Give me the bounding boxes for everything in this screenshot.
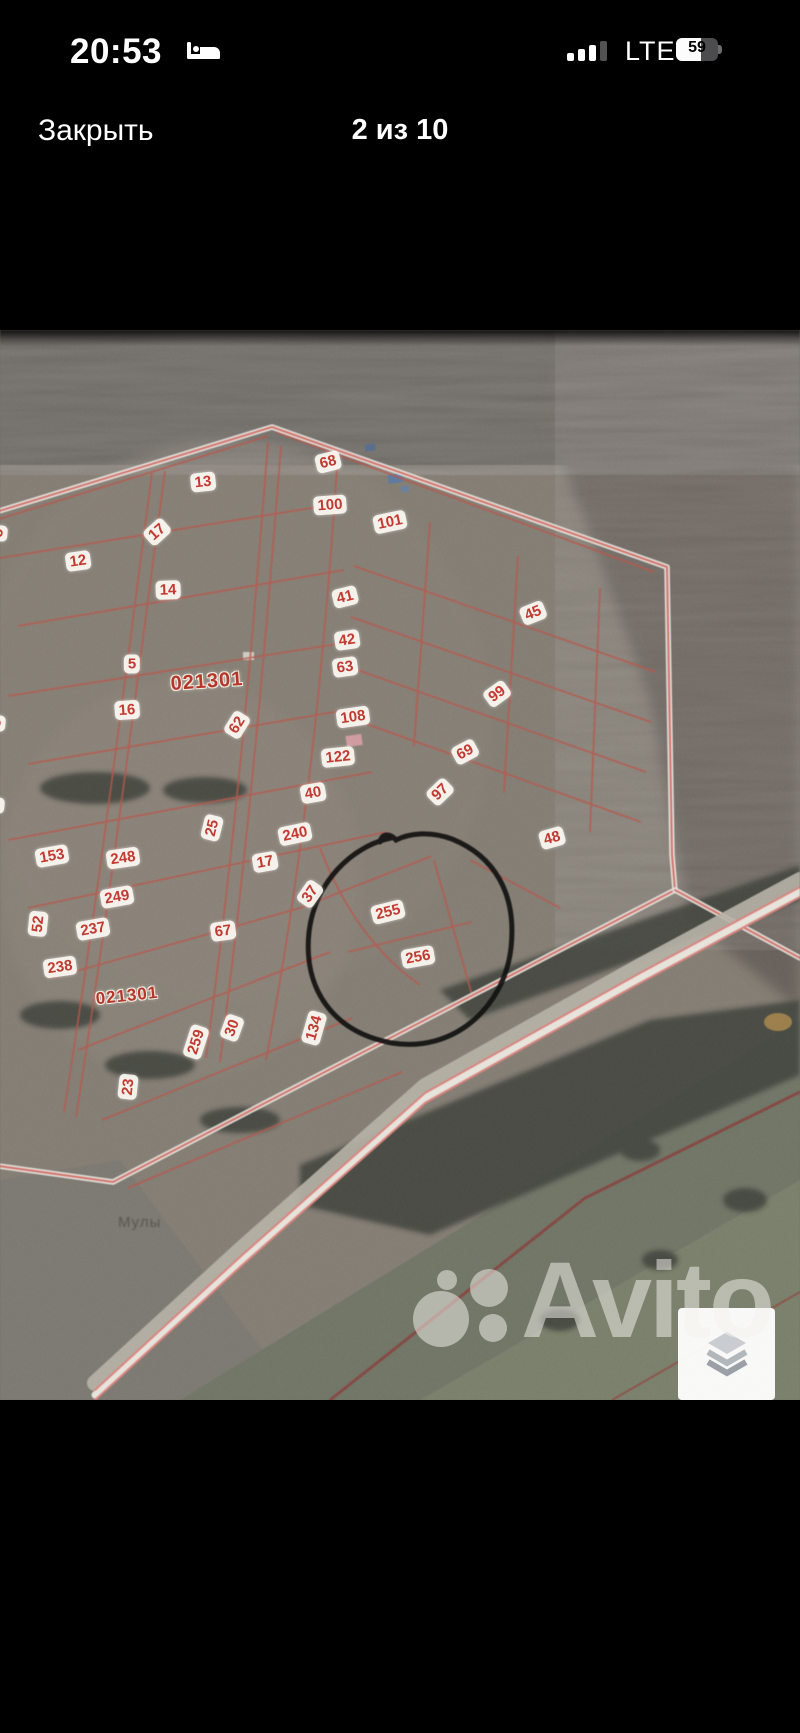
plot-label-69: 69 [450,738,481,766]
avito-watermark-text: Avito [521,1246,772,1354]
plot-label-12: 12 [64,550,91,572]
plot-label-240: 240 [277,821,313,846]
avito-watermark: Avito [403,1250,793,1380]
plot-label-99: 99 [481,679,512,709]
listing-photo-map[interactable]: Мулы 68131001011712144145425631610899626… [0,330,800,1400]
plot-label-23: 23 [117,1074,138,1101]
plot-label-108: 108 [335,705,370,728]
phone-screen: { "status_bar": { "time": "20:53", "slee… [0,0,800,1733]
plot-label-52: 52 [27,911,48,938]
plot-label-17: 17 [141,517,172,548]
plot-label-30: 30 [219,1013,245,1043]
plot-label-48: 48 [538,825,567,850]
status-bar: 20:53 LTE 59 [0,0,800,100]
plot-label-259: 259 [182,1023,210,1060]
network-type: LTE [625,36,676,67]
plot-label-37: 37 [295,878,325,909]
plot-label-255: 255 [370,899,407,925]
plot-label-237: 237 [75,917,111,941]
plot-label-122: 122 [321,746,356,768]
plot-label-45: 45 [518,600,548,627]
plot-label-25: 25 [200,814,224,843]
plot-label-41: 41 [331,585,360,609]
plot-label-42: 42 [333,629,360,651]
clock: 20:53 [70,32,162,72]
plot-label-5: 5 [0,524,8,542]
plot-label-13: 13 [190,471,217,492]
plot-label-100: 100 [313,494,347,515]
plot-label-153: 153 [34,844,70,868]
plot-label-238: 238 [42,955,77,978]
battery-icon: 59 [676,38,722,61]
plot-label-63: 63 [331,656,358,678]
photo-viewer-header: Закрыть 2 из 10 [0,108,800,164]
plot-label-17: 17 [251,851,279,874]
plot-label-62: 62 [222,709,251,740]
battery-percent: 59 [676,39,718,57]
plot-label-134: 134 [300,1010,327,1047]
plot-label-67: 67 [209,920,236,942]
avito-logo-dots-icon [403,1262,518,1362]
plot-label-249: 249 [99,885,135,909]
plot-label-16: 16 [114,700,140,721]
cellular-signal-icon [567,40,615,67]
cadastral-quarter-label: 021301 [170,668,244,696]
plot-label-40: 40 [299,782,327,805]
plot-label-248: 248 [105,846,140,869]
plot-label-14: 14 [155,580,180,600]
plot-label-2: 2 [0,796,5,814]
bed-icon [186,40,222,69]
photo-counter: 2 из 10 [0,114,800,147]
place-name-label: Мулы [118,1214,161,1231]
plot-label-256: 256 [400,945,436,969]
plot-label-97: 97 [425,777,456,808]
plot-label-101: 101 [372,509,408,534]
plot-label-68: 68 [314,450,343,474]
plot-label-3: 3 [0,714,6,732]
plot-label-5: 5 [124,655,140,674]
cadastral-quarter-label: 021301 [95,983,159,1009]
